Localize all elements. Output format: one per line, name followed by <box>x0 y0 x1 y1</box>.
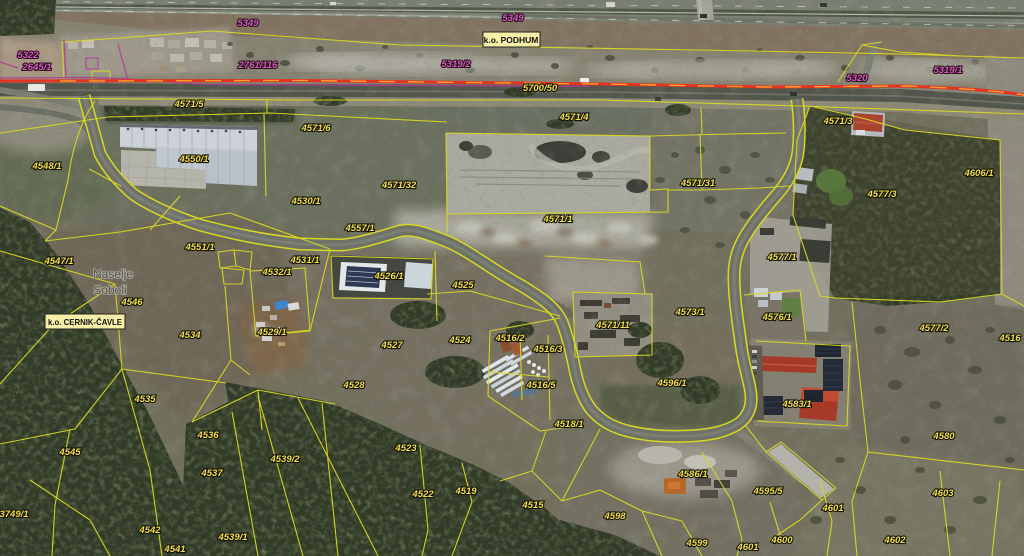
svg-text:4547/1: 4547/1 <box>43 256 73 267</box>
svg-text:4516/5: 4516/5 <box>525 380 556 391</box>
svg-text:4539/2: 4539/2 <box>269 454 300 465</box>
svg-text:4529/1: 4529/1 <box>256 327 286 338</box>
svg-text:4527: 4527 <box>380 340 403 351</box>
svg-text:4522: 4522 <box>411 489 434 500</box>
svg-text:Naselje: Naselje <box>93 267 133 281</box>
svg-text:4548/1: 4548/1 <box>31 161 61 172</box>
svg-text:4571/32: 4571/32 <box>381 180 417 191</box>
svg-text:4557/1: 4557/1 <box>344 223 374 234</box>
svg-text:4515: 4515 <box>521 500 544 511</box>
svg-text:4577/3: 4577/3 <box>866 189 897 200</box>
svg-text:4536: 4536 <box>196 430 219 441</box>
svg-text:Soboli: Soboli <box>93 283 126 297</box>
svg-text:4523: 4523 <box>394 443 417 454</box>
svg-text:k.o. CERNIK-ČAVLE: k.o. CERNIK-ČAVLE <box>48 316 122 327</box>
svg-text:4519: 4519 <box>454 486 477 497</box>
svg-text:4539/1: 4539/1 <box>217 532 247 543</box>
svg-text:5322: 5322 <box>17 50 39 61</box>
svg-text:4601: 4601 <box>736 542 758 553</box>
svg-text:4550/1: 4550/1 <box>178 154 208 165</box>
svg-text:4571/4: 4571/4 <box>558 112 589 123</box>
svg-text:4596/1: 4596/1 <box>656 378 686 389</box>
svg-text:4602: 4602 <box>883 535 906 546</box>
svg-text:4551/1: 4551/1 <box>184 242 214 253</box>
svg-text:4576/1: 4576/1 <box>761 312 791 323</box>
svg-text:4600: 4600 <box>770 535 793 546</box>
svg-text:5320: 5320 <box>846 73 868 84</box>
svg-text:4606/1: 4606/1 <box>963 168 993 179</box>
svg-text:k.o. PODHUM: k.o. PODHUM <box>484 35 539 45</box>
svg-text:4603: 4603 <box>931 488 954 499</box>
svg-text:5349: 5349 <box>502 13 524 24</box>
svg-text:3749/1: 3749/1 <box>0 509 29 520</box>
svg-text:4583/1: 4583/1 <box>781 399 811 410</box>
svg-text:2761/116: 2761/116 <box>238 60 279 71</box>
svg-text:4535: 4535 <box>133 394 156 405</box>
svg-text:4598: 4598 <box>603 511 626 522</box>
svg-text:4546: 4546 <box>120 297 143 308</box>
svg-text:4518/1: 4518/1 <box>553 419 583 430</box>
svg-text:4532/1: 4532/1 <box>261 267 291 278</box>
svg-text:5700/50: 5700/50 <box>523 83 558 94</box>
svg-text:4524: 4524 <box>448 335 471 346</box>
svg-text:5349: 5349 <box>237 18 259 29</box>
svg-text:4599: 4599 <box>685 538 708 549</box>
svg-text:4601: 4601 <box>821 503 843 514</box>
svg-text:4525: 4525 <box>451 280 474 291</box>
svg-text:4516: 4516 <box>998 333 1021 344</box>
svg-text:4571/3: 4571/3 <box>822 116 853 127</box>
svg-text:4537: 4537 <box>200 468 223 479</box>
svg-text:4580: 4580 <box>932 431 955 442</box>
svg-text:4595/5: 4595/5 <box>752 486 783 497</box>
svg-text:4571/11: 4571/11 <box>595 320 630 331</box>
svg-text:4542: 4542 <box>138 525 161 536</box>
svg-text:4571/6: 4571/6 <box>300 123 331 134</box>
svg-text:4531/1: 4531/1 <box>289 255 319 266</box>
svg-text:4577/2: 4577/2 <box>918 323 949 334</box>
svg-text:4573/1: 4573/1 <box>674 307 704 318</box>
svg-text:4516/2: 4516/2 <box>494 333 525 344</box>
svg-text:4571/31: 4571/31 <box>680 178 715 189</box>
svg-text:4530/1: 4530/1 <box>290 196 320 207</box>
svg-text:4545: 4545 <box>58 447 81 458</box>
svg-text:4516/3: 4516/3 <box>532 344 563 355</box>
svg-text:5319/2: 5319/2 <box>441 59 471 70</box>
svg-text:4577/1: 4577/1 <box>766 252 796 263</box>
svg-text:4541: 4541 <box>163 544 185 555</box>
svg-text:5319/1: 5319/1 <box>933 65 962 76</box>
svg-text:4571/1: 4571/1 <box>542 214 572 225</box>
svg-text:4528: 4528 <box>342 380 365 391</box>
svg-text:4526/1: 4526/1 <box>373 271 403 282</box>
svg-text:4534: 4534 <box>178 330 201 341</box>
svg-text:4571/5: 4571/5 <box>173 99 204 110</box>
svg-text:2645/1: 2645/1 <box>21 62 51 73</box>
svg-text:4586/1: 4586/1 <box>677 469 707 480</box>
